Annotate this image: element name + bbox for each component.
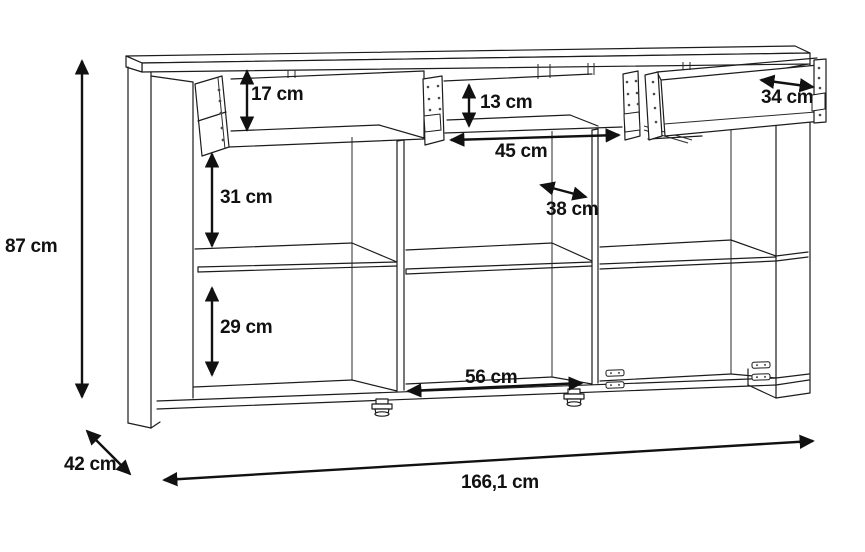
- middle-drawer-cavity: [444, 74, 622, 133]
- dim-label-left-drawer-height: 17 cm: [251, 85, 303, 104]
- interior-back-edges: [352, 127, 731, 380]
- dim-label-width: 166,1 cm: [461, 473, 539, 492]
- left-drawer-cavity: [229, 71, 424, 147]
- dim-label-depth: 42 cm: [64, 455, 116, 474]
- foot-right: [564, 389, 584, 406]
- dim-label-drawer-side-depth: 34 cm: [761, 88, 813, 107]
- shelf-left: [195, 243, 397, 272]
- divider-right: [592, 129, 598, 384]
- foot-left: [372, 399, 392, 416]
- dim-label-middle-drawer-height: 13 cm: [480, 93, 532, 112]
- dim-label-shelf-depth: 38 cm: [546, 200, 598, 219]
- furniture-dimension-diagram: 87 cm 17 cm 31 cm 29 cm 13 cm 45 cm 34 c…: [0, 0, 865, 552]
- divider-left: [397, 140, 404, 391]
- dim-label-drawer-inner-width: 45 cm: [495, 142, 547, 161]
- dim-label-upper-compartment-height: 31 cm: [220, 188, 272, 207]
- dim-38cm-arrow: [541, 185, 586, 197]
- middle-drawer-right-bracket: [623, 71, 640, 140]
- dim-label-lower-compartment-height: 29 cm: [220, 318, 272, 337]
- dim-label-bottom-middle-width: 56 cm: [465, 368, 517, 387]
- dim-label-height: 87 cm: [5, 237, 57, 256]
- shelf-middle: [406, 243, 592, 274]
- dim-45cm-arrow: [451, 135, 619, 140]
- shelf-right: [600, 240, 808, 269]
- left-drawer-front-panel: [195, 76, 229, 156]
- middle-drawer-left-bracket: [423, 76, 444, 145]
- cabinet-line-drawing: [0, 0, 865, 552]
- left-side-panel: [128, 67, 193, 428]
